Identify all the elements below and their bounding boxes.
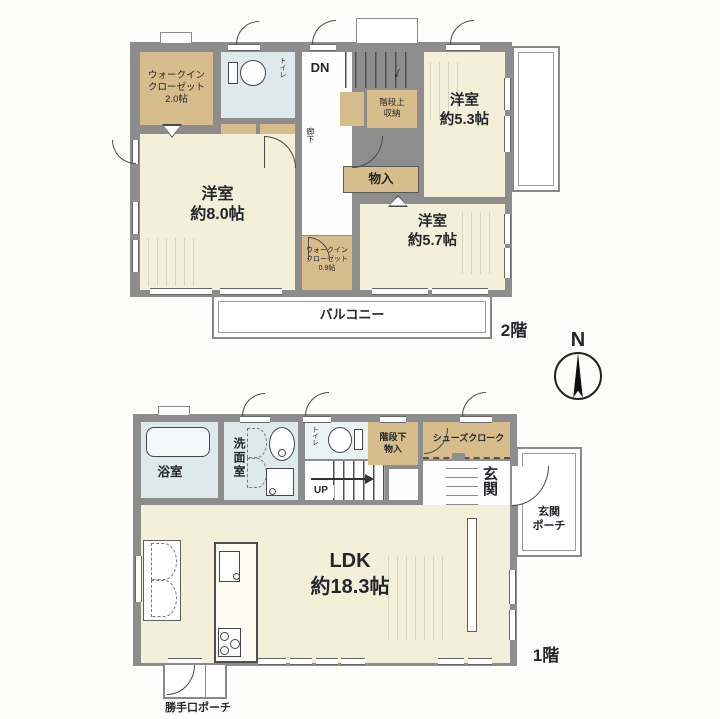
toilet-1f-label: トイレ <box>310 426 317 446</box>
under-stair-storage-label: 階段下 物入 <box>368 432 418 455</box>
bathroom-label: 浴室 <box>144 464 196 480</box>
walkin-closet-2_0-door-notch <box>162 124 182 138</box>
vent-bump-1f-left <box>158 406 190 415</box>
ldk-label: LDK 約18.3帖 <box>240 549 460 600</box>
walkin-closet-2_0-label: ウォークイン クローゼット 2.0帖 <box>140 70 213 106</box>
closet-2f-center-label: 物入 <box>343 171 419 187</box>
bathtub <box>146 427 210 457</box>
window-2f-right-53-b <box>504 116 511 152</box>
washroom-folding-door-a <box>247 428 267 458</box>
toilet-1f-tank <box>354 429 363 450</box>
first-floor-label: 1階 <box>522 645 570 667</box>
stairs-up-label: UP <box>308 485 334 498</box>
window-arc-2f-top-a <box>236 21 259 44</box>
bedroom-5_3-label: 洋室 約5.3帖 <box>424 92 505 129</box>
toilet-1f-bowl <box>328 427 352 453</box>
window-1f-bottom-a <box>258 658 286 665</box>
window-1f-left <box>135 556 142 602</box>
floor-plan: ウォークイン クローゼット 2.0帖 トイレ 物入 物入 DN 廊下 ↓ 階段上… <box>0 0 720 719</box>
window-arc-1f-top-a <box>242 393 265 416</box>
window-2f-right-53-a <box>504 78 511 110</box>
window-1f-top-toilet <box>303 416 331 423</box>
window-2f-right-57-b <box>504 248 511 278</box>
back-door-porch-divider <box>205 664 206 698</box>
window-2f-top-toilet <box>228 44 260 51</box>
stairs-1f-landing <box>389 469 418 500</box>
washing-machine-drain <box>269 488 276 495</box>
pantry-folding-door-a <box>151 543 177 580</box>
window-arc-2f-left <box>112 140 136 164</box>
stove-burner-b <box>230 639 240 649</box>
stairs-1f-arrow-line <box>311 478 367 480</box>
window-2f-top-bedroom53 <box>446 44 480 51</box>
window-arc-1f-top-c <box>462 392 486 416</box>
window-1f-right-b <box>509 610 516 640</box>
bedroom-5_7-door-notch <box>388 195 408 207</box>
side-roof-inner-line <box>518 52 554 186</box>
window-2f-left-c <box>132 240 139 272</box>
window-1f-top-understair <box>380 416 406 423</box>
window-1f-right-a <box>509 570 516 604</box>
second-floor-side-roof <box>512 46 560 192</box>
kitchen-cabinet-knob <box>233 573 240 580</box>
hallway-2f-label: 廊下 <box>306 127 314 143</box>
entrance-porch-label: 玄関 ポーチ <box>516 505 582 533</box>
stairs-dn-label: DN <box>305 60 335 77</box>
window-1f-bottom-e <box>438 658 464 665</box>
pantry-folding-door-b <box>151 580 177 617</box>
stairs-1f-treads <box>333 461 385 500</box>
second-floor-label: 2階 <box>490 320 538 342</box>
window-2f-balcony-80-b <box>220 288 282 295</box>
window-2f-top-stairs <box>310 44 336 51</box>
stair-top-storage-label: 階段上 収納 <box>367 97 417 119</box>
shoes-cloak-hanger-rail <box>423 457 510 459</box>
window-2f-right-57-a <box>504 214 511 244</box>
window-2f-balcony-80-a <box>150 288 212 295</box>
window-arc-2f-top-b <box>312 20 336 44</box>
stair-bay-bump-2f <box>356 18 418 43</box>
washroom-label: 洗面室 <box>233 437 245 479</box>
washroom-folding-door-b <box>247 458 267 488</box>
compass-north-label: N <box>560 328 596 354</box>
balcony-label: バルコニー <box>212 307 492 324</box>
window-arc-2f-top-c <box>450 20 474 44</box>
vent-bump-2f-left <box>160 32 192 43</box>
stairs-1f-arrow-head <box>365 474 374 484</box>
toilet-2f-label: トイレ <box>279 57 286 78</box>
entrance-label: 玄関 <box>482 466 497 496</box>
bedroom-5_7-label: 洋室 約5.7帖 <box>360 213 505 250</box>
ldk-partition-wall <box>467 518 477 632</box>
window-2f-balcony-57-a <box>372 288 428 295</box>
window-arc-1f-top-b <box>305 392 329 416</box>
toilet-2f-tank <box>228 62 238 84</box>
window-1f-bottom-b <box>290 658 312 665</box>
window-1f-bottom-d <box>341 658 365 665</box>
stairs-2f-small-closet <box>340 92 364 126</box>
window-1f-bottom-f <box>468 658 492 665</box>
bedroom-8_0-floor-hatch <box>148 238 194 286</box>
window-2f-left-b <box>132 202 139 234</box>
stairs-2f <box>345 52 415 88</box>
washbasin-faucet <box>278 449 286 457</box>
window-1f-top-washroom <box>240 416 270 423</box>
window-1f-top-shoes <box>460 416 492 423</box>
entrance-step-lines <box>446 468 478 510</box>
stove-burner-c <box>220 646 229 655</box>
toilet-2f-bowl <box>240 60 266 86</box>
bedroom-8_0-label: 洋室 約8.0帖 <box>140 185 295 226</box>
window-2f-balcony-57-b <box>432 288 488 295</box>
back-door-porch-label: 勝手口ポーチ <box>158 701 238 715</box>
window-1f-bottom-c <box>316 658 338 665</box>
stove-burner-a <box>220 632 229 641</box>
